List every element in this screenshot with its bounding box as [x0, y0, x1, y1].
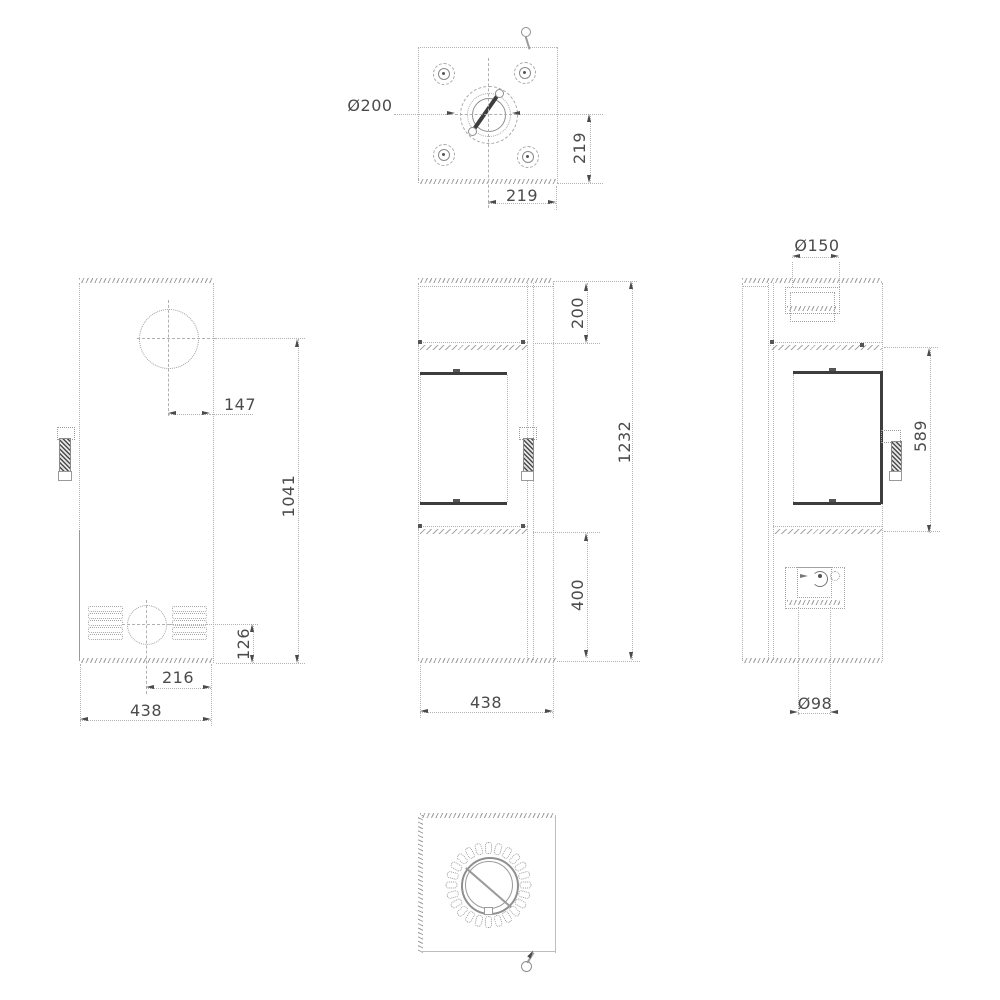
door-glass-left-edge: [793, 374, 794, 502]
rear-step-line: [742, 286, 768, 287]
knob-slot: [474, 843, 484, 856]
dim-arrow: [629, 652, 633, 660]
dim-line-438: [80, 720, 211, 721]
dim-line-1232: [632, 281, 633, 660]
dim-arrow: [420, 709, 428, 713]
dim-flue-height: 1041: [258, 478, 318, 514]
dim-door-glass-height: 589: [895, 418, 945, 454]
knob-slot: [520, 882, 532, 889]
top-section-separator-hatch: [418, 345, 528, 350]
dim-flue-diameter: Ø200: [346, 96, 394, 114]
dim-flue-to-side: 219: [502, 187, 542, 203]
extension-line: [170, 624, 258, 625]
door-handle-end: [58, 471, 72, 481]
separator-tick: [418, 340, 422, 344]
dim-arrow: [587, 114, 591, 122]
intake-centerline-h: [122, 624, 170, 625]
vent-slot: [172, 634, 207, 640]
extension-line: [557, 183, 603, 184]
extension-line: [553, 281, 637, 282]
door-bottom-separator: [418, 526, 528, 527]
dim-arrow: [146, 685, 154, 689]
dim-arrow: [202, 411, 210, 415]
dim-arrow: [295, 339, 299, 347]
separator-tick: [521, 524, 525, 528]
extension-line: [792, 262, 793, 287]
dim-arrow: [203, 717, 211, 721]
body-left-edge: [742, 283, 743, 661]
door-latch-mark: [453, 369, 460, 372]
dim-arrow: [488, 200, 496, 204]
vent-slot: [88, 634, 123, 640]
dim-width: 438: [464, 694, 508, 710]
dim-line-438: [420, 712, 553, 713]
flue-centerline-v: [168, 300, 169, 416]
dim-total-height: 1232: [594, 422, 654, 462]
extension-line: [216, 663, 305, 664]
intake-knob-notch: [484, 907, 493, 915]
flue-centerline-h: [445, 114, 517, 115]
body-bottom-edge: [742, 658, 882, 663]
door-glass-top-edge: [793, 371, 881, 374]
dim-arrow: [587, 175, 591, 183]
door-bottom-separator: [773, 526, 882, 527]
dim-line-98: [798, 713, 830, 714]
separator-tick: [770, 340, 774, 344]
door-glass-left-edge: [420, 375, 421, 502]
base-top-edge: [420, 813, 555, 818]
intake-centerline-v: [146, 600, 147, 694]
vent-slot: [88, 613, 123, 619]
vent-slot: [172, 606, 207, 612]
intake-box-hatch: [787, 600, 840, 605]
vent-slot: [88, 606, 123, 612]
door-bottom-separator-hatch: [773, 529, 882, 534]
mounting-bolt-center: [442, 72, 445, 75]
extension-line: [533, 532, 600, 533]
intake-pivot: [818, 574, 822, 578]
dim-intake-offset: 216: [158, 669, 198, 685]
knob-slot: [485, 842, 492, 854]
extension-line: [557, 661, 640, 662]
mounting-bolt-center: [523, 71, 526, 74]
dim-arrow: [629, 281, 633, 289]
body-top-edge: [79, 278, 213, 283]
dim-collar-diameter: Ø150: [793, 237, 841, 254]
flue-collar-hatch: [787, 306, 836, 311]
vent-slot: [172, 620, 207, 626]
extension-line: [215, 338, 305, 339]
dim-arrow: [584, 283, 588, 291]
flue-centerline-v: [488, 58, 489, 208]
intake-lever-chevron: [800, 574, 808, 578]
knob-slot: [518, 870, 531, 880]
air-intake-circle: [127, 605, 167, 645]
vent-slot: [172, 613, 207, 619]
dim-arrow: [295, 655, 299, 663]
mounting-bolt-center: [442, 153, 445, 156]
separator-tick: [418, 524, 422, 528]
dim-arrow: [927, 525, 931, 533]
extension-line: [839, 262, 840, 287]
dim-arrow: [548, 200, 556, 204]
vent-slot: [88, 620, 123, 626]
door-latch-mark: [829, 368, 836, 371]
body-left-edge-solid: [79, 530, 80, 661]
knob-slot: [485, 916, 492, 928]
leader-balloon-bottom: [521, 961, 532, 972]
dim-arrow: [584, 335, 588, 343]
vent-slot: [172, 627, 207, 633]
dim-flue-to-back: 219: [559, 130, 599, 166]
door-glass-top-edge: [420, 372, 507, 375]
top-section-separator-hatch: [770, 345, 882, 350]
base-left-edge: [418, 815, 423, 953]
damper-screw-top: [495, 89, 504, 98]
extension-line: [884, 531, 940, 532]
door-glass-bottom-edge: [793, 502, 881, 505]
dim-arrow: [927, 348, 931, 356]
dim-line-216: [146, 688, 211, 689]
body-bottom-edge: [418, 658, 557, 663]
dim-base-section: 400: [552, 577, 602, 613]
top-plate-right-edge: [557, 47, 558, 183]
top-section-separator: [770, 342, 882, 343]
extension-line: [533, 343, 600, 344]
separator-tick: [860, 343, 864, 347]
extension-line: [553, 665, 554, 718]
dim-arrow: [584, 650, 588, 658]
dim-leader-line: [394, 114, 452, 115]
dim-top-section: 200: [552, 295, 602, 331]
dim-depth: 438: [124, 702, 168, 718]
door-glass-bottom-edge: [420, 502, 507, 505]
dim-arrow: [545, 709, 553, 713]
dim-intake-height: 126: [221, 626, 265, 662]
base-bottom-edge: [420, 951, 556, 952]
dim-arrow: [80, 717, 88, 721]
dim-arrow: [584, 533, 588, 541]
knob-slot: [474, 914, 484, 927]
dim-flue-offset: 147: [222, 396, 258, 412]
body-right-edge: [213, 283, 214, 663]
door-handle: [523, 438, 534, 474]
door-glass-right-edge: [507, 375, 508, 502]
dim-arrow: [168, 411, 176, 415]
dim-intake-diameter: Ø98: [795, 695, 835, 712]
top-plate-left-edge: [418, 47, 419, 183]
flue-centerline-h: [137, 338, 215, 339]
door-handle-end: [889, 471, 902, 481]
door-handle: [59, 438, 71, 474]
intake-screw: [830, 571, 840, 581]
top-section-separator: [418, 342, 528, 343]
dim-arrow: [512, 111, 520, 115]
knob-slot: [446, 882, 458, 889]
knob-slot: [446, 870, 459, 880]
extension-line: [556, 186, 557, 210]
base-right-edge: [555, 815, 556, 953]
dim-tail: [210, 414, 253, 415]
dim-arrow: [203, 685, 211, 689]
door-handle-end: [521, 471, 534, 481]
vent-slot: [88, 627, 123, 633]
door-latch-mark: [829, 499, 836, 502]
dim-arrow: [447, 111, 455, 115]
body-top-edge: [742, 278, 882, 283]
rear-panel-line-outer: [768, 283, 769, 660]
door-latch-mark: [453, 499, 460, 502]
extension-line: [211, 664, 212, 726]
door-bottom-separator-hatch: [418, 529, 528, 534]
top-plate-back-edge: [418, 47, 557, 48]
stove-technical-drawing: Ø200 219 219 147 1041: [0, 0, 1000, 1000]
separator-tick: [521, 340, 525, 344]
mounting-bolt-center: [526, 155, 529, 158]
damper-screw-bottom: [468, 127, 477, 136]
side-flue-outlet: [139, 309, 199, 369]
